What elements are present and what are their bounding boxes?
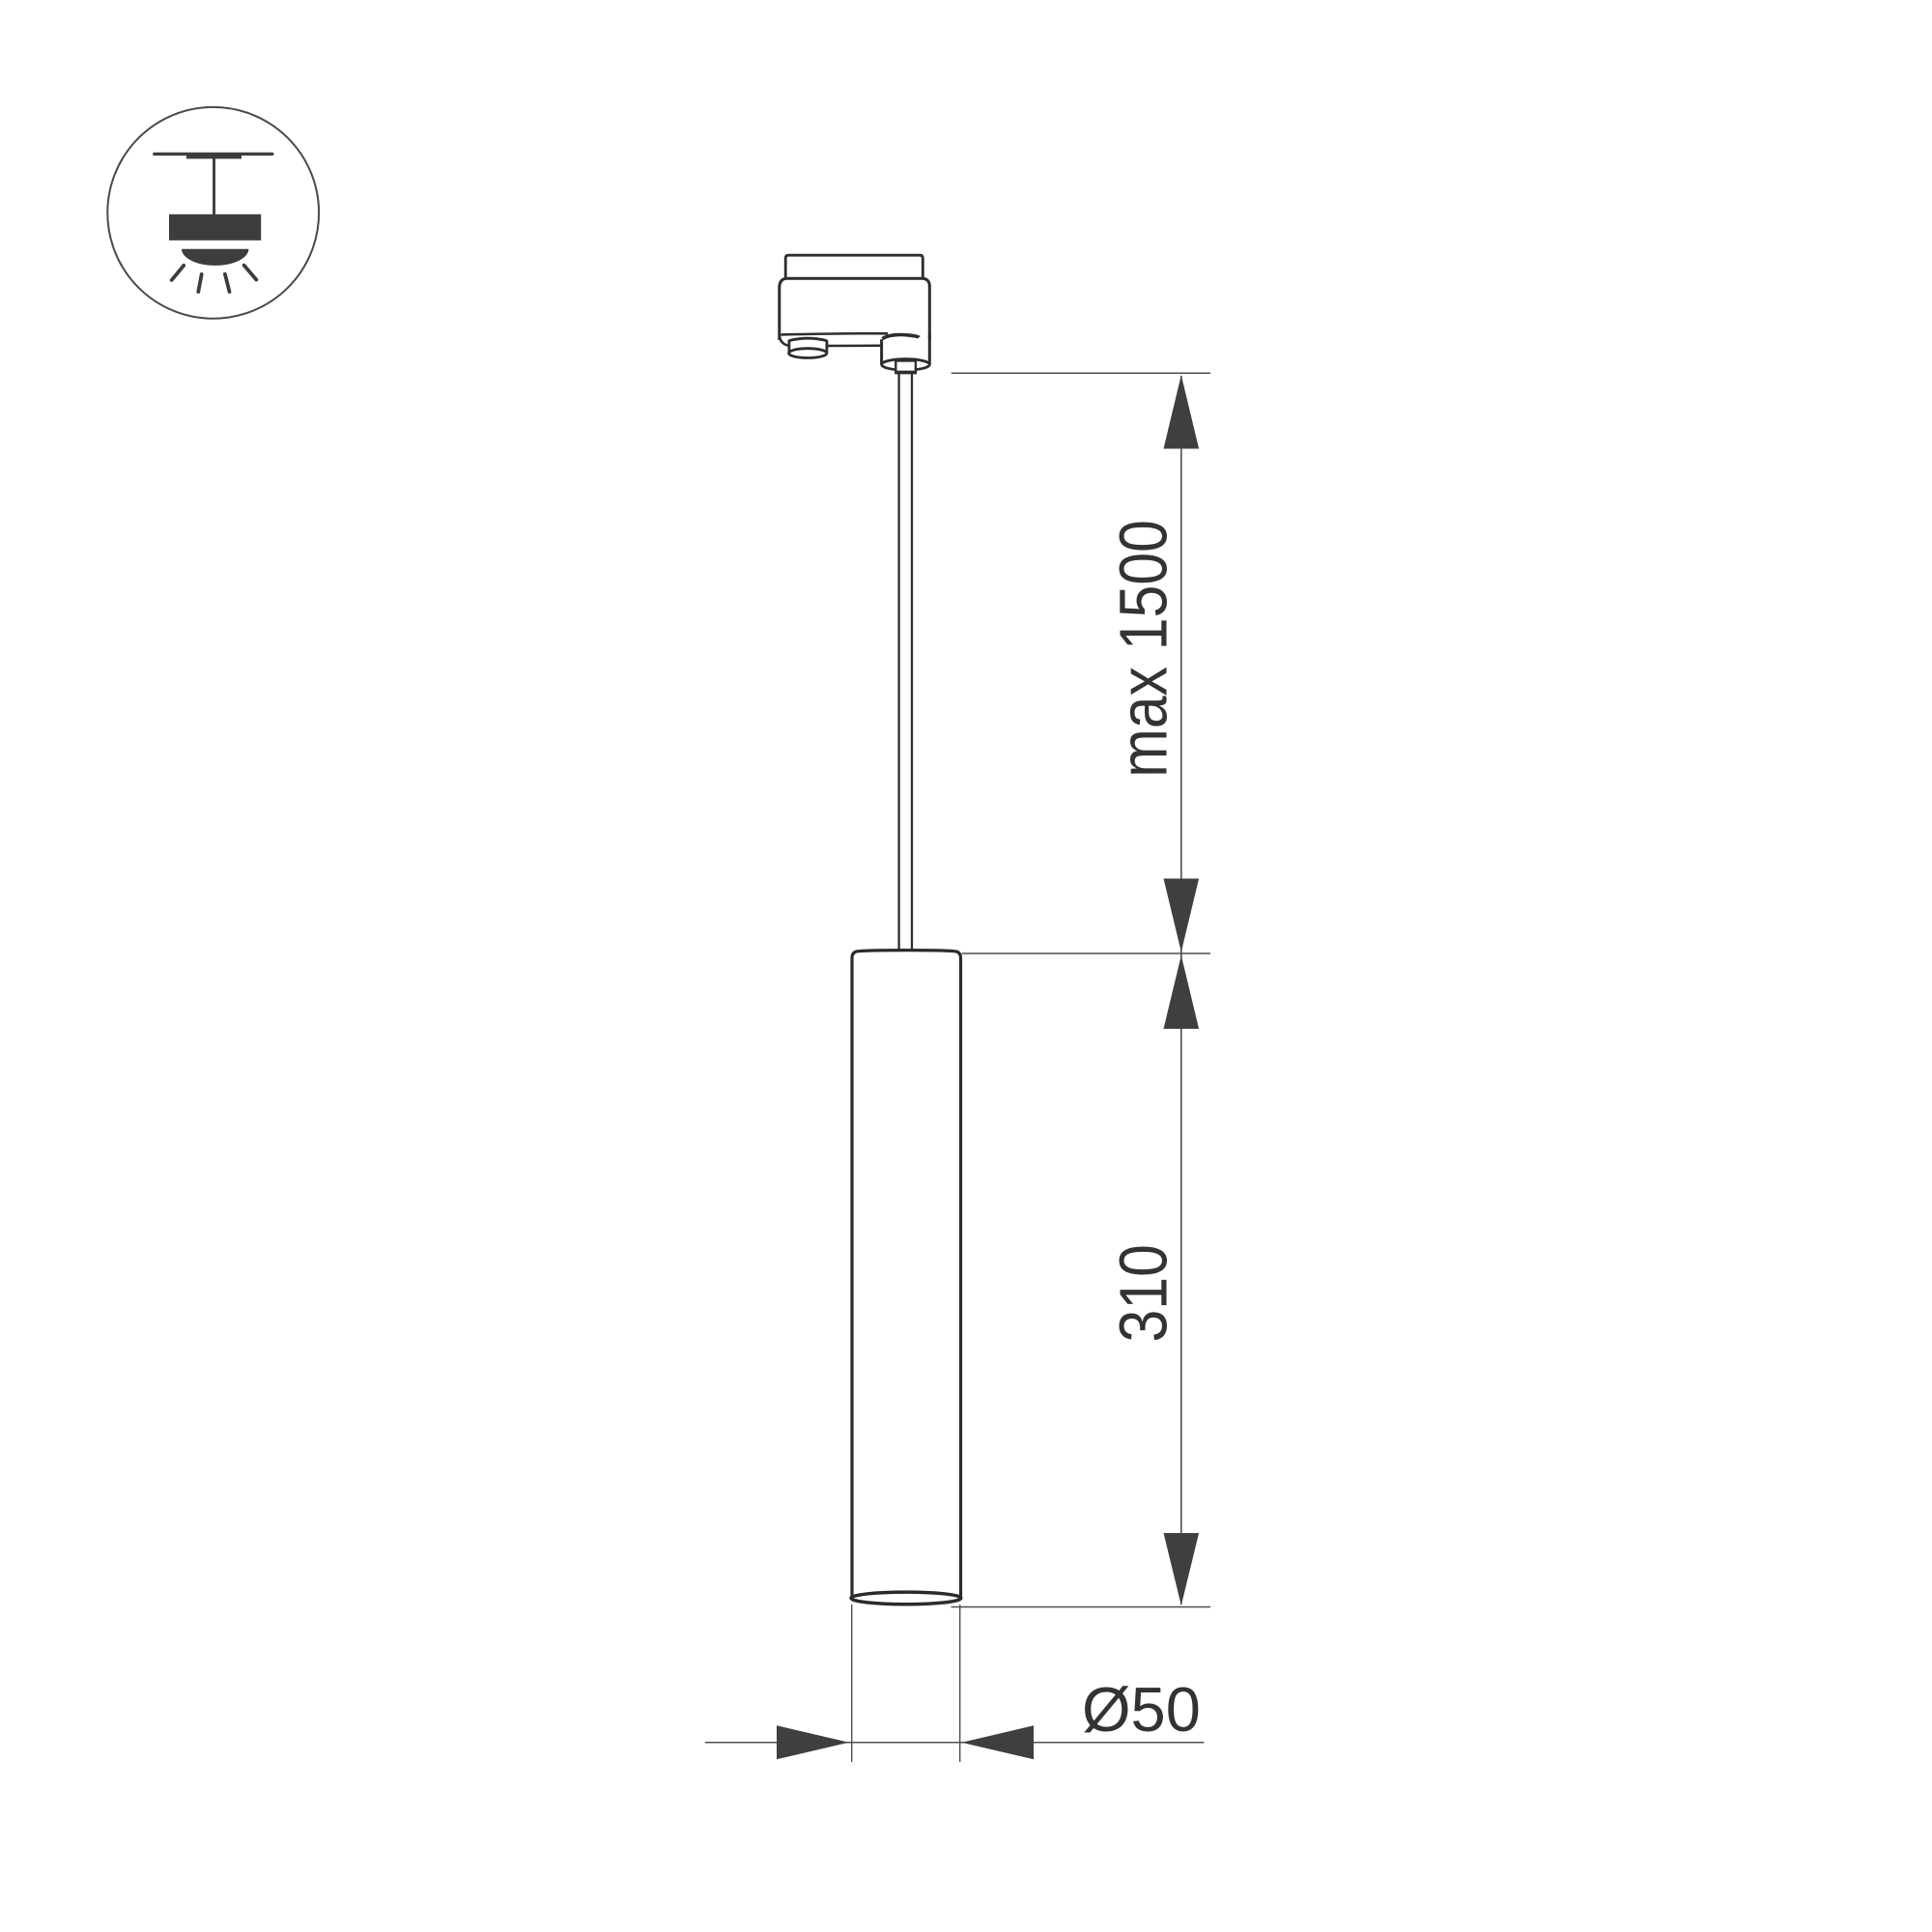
svg-text:310: 310 xyxy=(1106,1244,1181,1342)
svg-text:Ø50: Ø50 xyxy=(1082,1674,1201,1745)
svg-text:max 1500: max 1500 xyxy=(1106,520,1181,778)
